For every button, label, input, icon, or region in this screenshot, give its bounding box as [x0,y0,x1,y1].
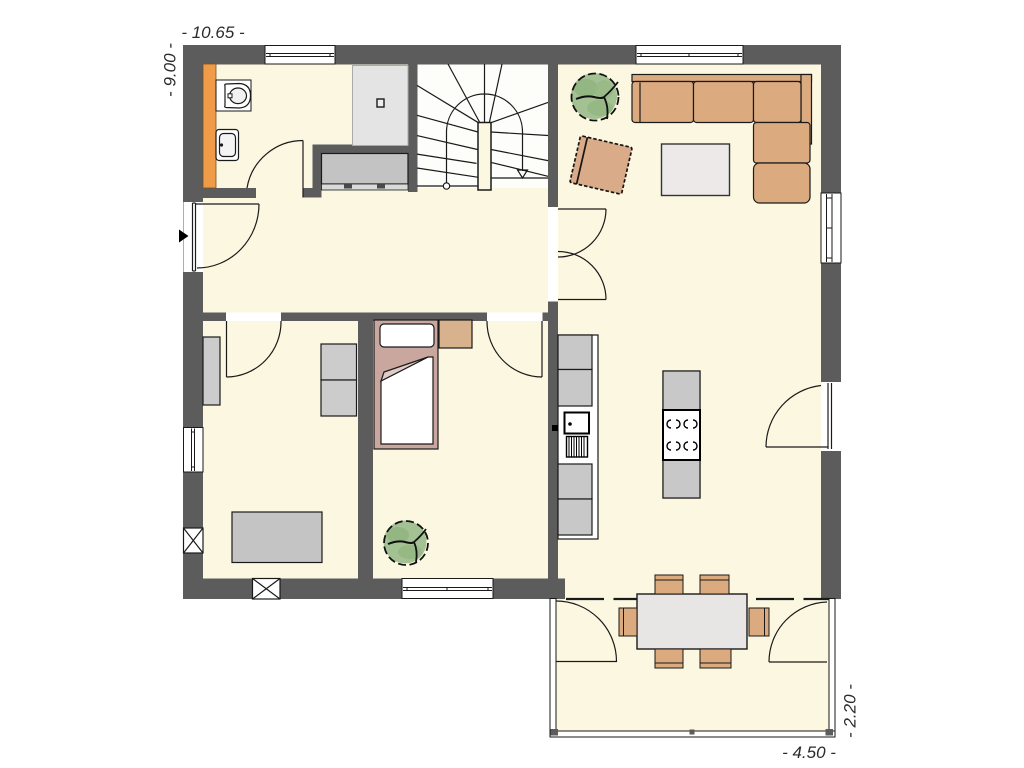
svg-text:- 9.00 -: - 9.00 - [161,43,180,97]
svg-text:- 10.65 -: - 10.65 - [181,23,245,42]
svg-text:- 4.50 -: - 4.50 - [782,743,836,762]
svg-text:- 2.20 -: - 2.20 - [841,684,860,738]
